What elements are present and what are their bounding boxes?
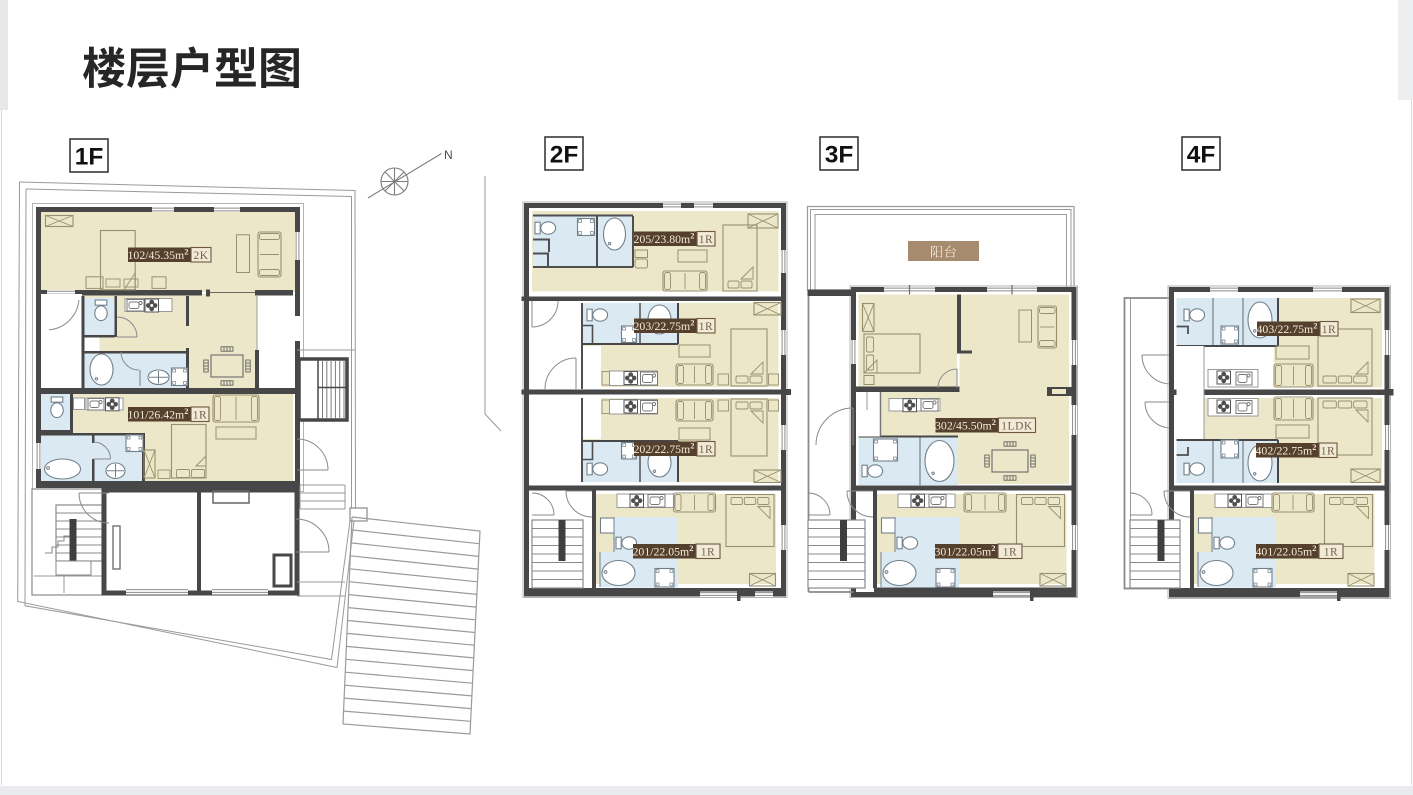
svg-text:2K: 2K	[193, 250, 208, 262]
svg-text:205/23.80m2: 205/23.80m2	[634, 231, 695, 246]
svg-text:1R: 1R	[193, 409, 207, 421]
svg-text:301/22.05m2: 301/22.05m2	[935, 543, 996, 558]
svg-text:1R: 1R	[699, 444, 713, 456]
svg-text:203/22.75m2: 203/22.75m2	[634, 318, 695, 333]
svg-text:1F: 1F	[75, 144, 104, 171]
svg-text:403/22.75m2: 403/22.75m2	[1257, 321, 1318, 336]
svg-text:4F: 4F	[1187, 142, 1216, 169]
svg-text:202/22.75m2: 202/22.75m2	[634, 441, 695, 456]
svg-text:402/22.75m2: 402/22.75m2	[1256, 442, 1317, 457]
svg-text:201/22.05m2: 201/22.05m2	[633, 543, 694, 558]
svg-text:302/45.50m2: 302/45.50m2	[935, 417, 996, 432]
svg-text:2F: 2F	[550, 142, 579, 169]
svg-text:1R: 1R	[1321, 445, 1335, 457]
svg-text:1R: 1R	[1322, 324, 1336, 336]
svg-text:401/22.05m2: 401/22.05m2	[1256, 543, 1317, 558]
svg-text:1R: 1R	[1003, 546, 1017, 558]
svg-text:N: N	[444, 148, 453, 162]
svg-text:1LDK: 1LDK	[1001, 420, 1033, 432]
svg-text:101/26.42m2: 101/26.42m2	[128, 406, 189, 421]
svg-text:1R: 1R	[1324, 546, 1338, 558]
svg-text:1R: 1R	[699, 321, 713, 333]
svg-text:1R: 1R	[699, 234, 713, 246]
svg-text:1R: 1R	[701, 546, 715, 558]
svg-text:3F: 3F	[825, 142, 854, 169]
svg-text:102/45.35m2: 102/45.35m2	[128, 247, 189, 262]
